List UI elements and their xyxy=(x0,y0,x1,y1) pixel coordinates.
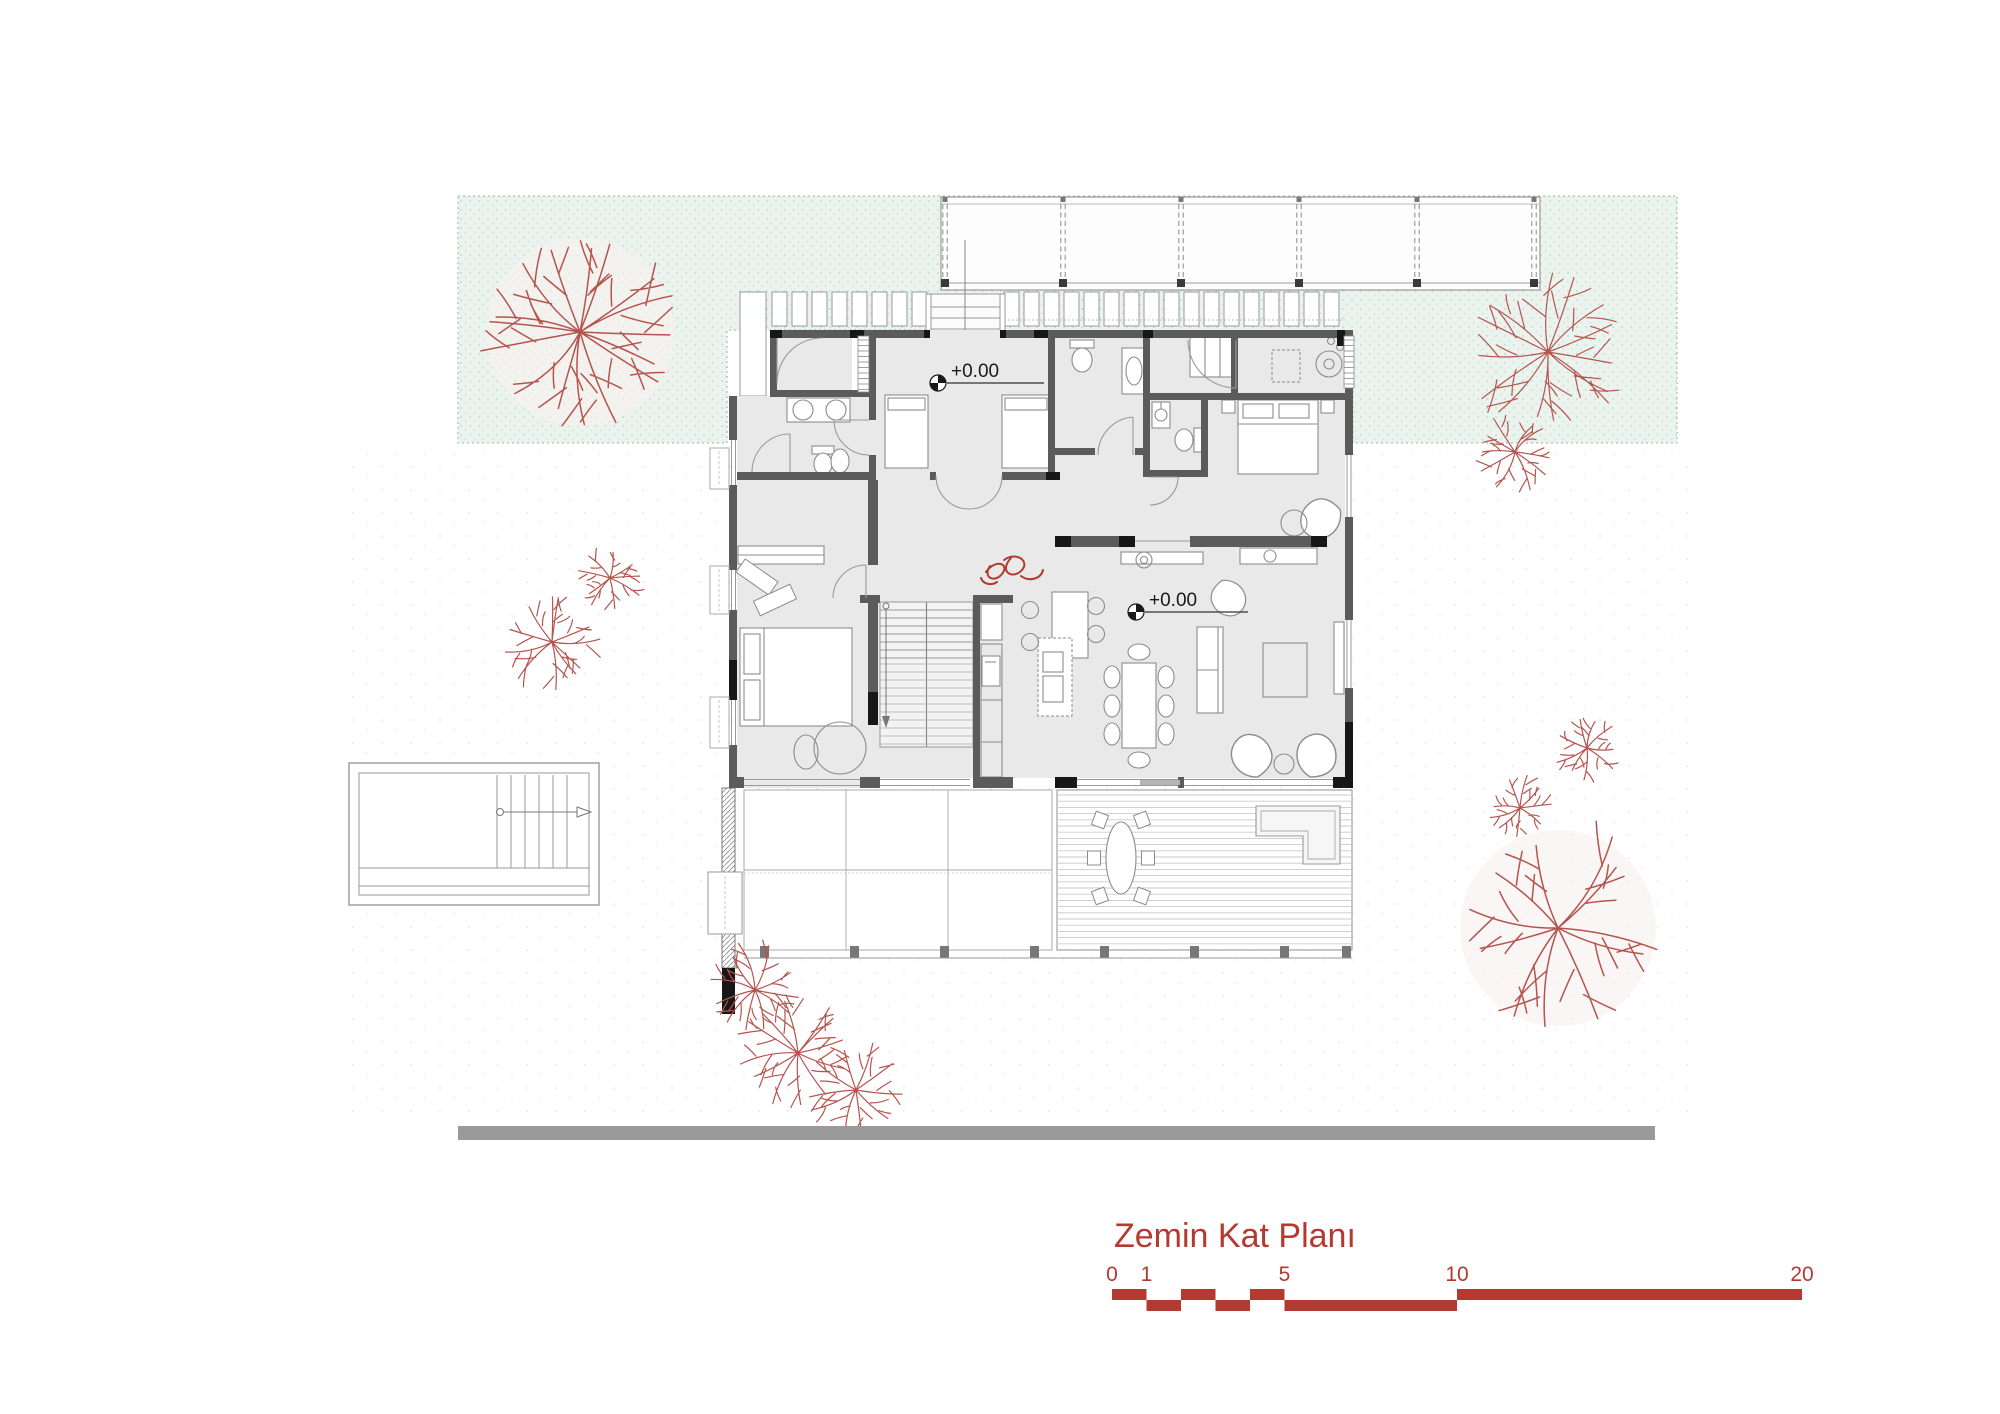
elevation-label: +0.00 xyxy=(951,361,999,382)
scale-bar-segment xyxy=(1457,1289,1802,1300)
floor-plan-page: +0.00+0.00Zemin Kat Planı0151020 xyxy=(0,0,2000,1414)
scale-tick-label: 20 xyxy=(1790,1263,1813,1286)
title-block: Zemin Kat Planı xyxy=(1114,1217,1356,1255)
scale-bar-segment xyxy=(1112,1289,1147,1300)
garage-structure xyxy=(349,763,599,905)
scale-tick-label: 5 xyxy=(1279,1263,1291,1286)
scale-bar: 0151020 xyxy=(1106,1263,1814,1311)
scale-tick-label: 1 xyxy=(1141,1263,1153,1286)
scale-bar-segment xyxy=(1147,1300,1182,1311)
scale-bar-segment xyxy=(1285,1300,1458,1311)
scale-bar-segment xyxy=(1250,1289,1285,1300)
scale-bar-segment xyxy=(1216,1300,1251,1311)
plan-title: Zemin Kat Planı xyxy=(1114,1217,1356,1255)
scale-tick-label: 10 xyxy=(1445,1263,1468,1286)
pergola xyxy=(941,197,1540,290)
scale-bar-segment xyxy=(1181,1289,1216,1300)
floor-plan-canvas: +0.00+0.00Zemin Kat Planı0151020 xyxy=(0,0,2000,1414)
scale-tick-label: 0 xyxy=(1106,1263,1118,1286)
staircase xyxy=(880,602,973,747)
elevation-label: +0.00 xyxy=(1149,590,1197,611)
road xyxy=(458,1126,1655,1140)
